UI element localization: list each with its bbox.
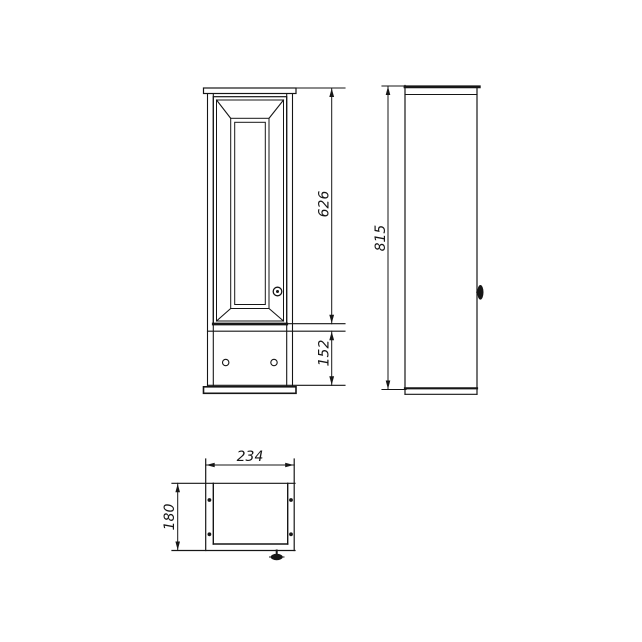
- dimension-label-width: 234: [237, 449, 264, 465]
- screw-hole: [208, 498, 212, 502]
- dimension-label-total-height: 815: [373, 225, 389, 252]
- technical-drawing: 626 152: [0, 0, 642, 642]
- dimension-label-lower-panel-height: 152: [317, 340, 333, 367]
- dimension-label-door-height: 626: [317, 191, 333, 218]
- screw-hole: [208, 532, 212, 536]
- screw-hole: [289, 532, 293, 536]
- screw-hole: [289, 498, 293, 502]
- background: [0, 0, 642, 642]
- dimension-label-depth: 180: [162, 504, 178, 531]
- drawing-canvas: 626 152: [0, 0, 642, 642]
